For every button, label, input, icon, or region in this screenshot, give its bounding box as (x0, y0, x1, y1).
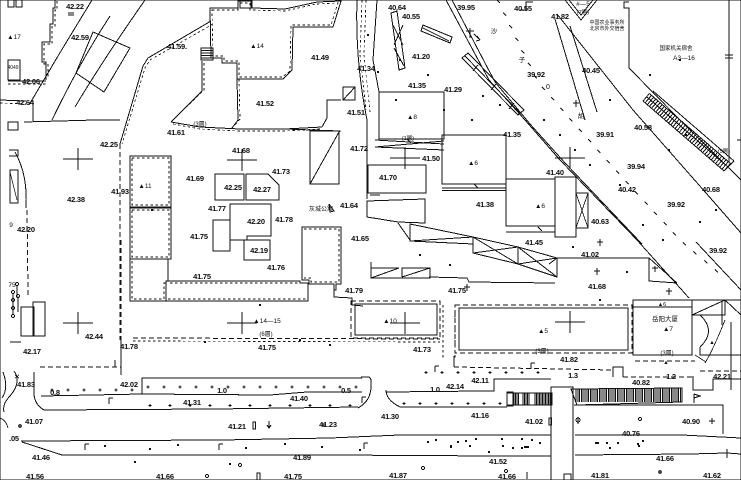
svg-text:41.02: 41.02 (581, 250, 599, 259)
svg-text:41.52: 41.52 (489, 457, 507, 466)
svg-text:9: 9 (9, 222, 13, 229)
svg-text:41.82: 41.82 (560, 355, 578, 364)
svg-text:▲6: ▲6 (535, 203, 545, 210)
svg-text:41.45: 41.45 (525, 238, 543, 247)
svg-text:▲6: ▲6 (468, 160, 478, 167)
svg-text:41.77: 41.77 (208, 204, 226, 213)
svg-text:41.81: 41.81 (591, 471, 609, 480)
svg-text:40.90: 40.90 (682, 417, 700, 426)
svg-text:39.95: 39.95 (457, 3, 475, 12)
svg-text:1.3: 1.3 (568, 371, 578, 380)
svg-text:42.38: 42.38 (67, 195, 85, 204)
svg-text:▲10: ▲10 (383, 318, 397, 325)
svg-text:41.66: 41.66 (498, 472, 516, 480)
svg-text:41.35: 41.35 (503, 130, 521, 139)
svg-text:41.61: 41.61 (167, 128, 185, 137)
svg-text:40.82: 40.82 (632, 378, 650, 387)
svg-text:42.59: 42.59 (71, 33, 89, 42)
svg-text:42.22: 42.22 (66, 2, 84, 11)
svg-text:0.5: 0.5 (341, 386, 351, 395)
svg-text:41.73: 41.73 (272, 167, 290, 176)
svg-text:42.20: 42.20 (247, 217, 265, 226)
svg-text:41.83: 41.83 (17, 380, 35, 389)
svg-text:40.76: 40.76 (622, 429, 640, 438)
svg-text:42.06: 42.06 (22, 77, 40, 86)
svg-text:40.55: 40.55 (514, 4, 532, 13)
svg-text:41.66: 41.66 (656, 454, 674, 463)
svg-text:国家机关宿舍: 国家机关宿舍 (659, 44, 693, 52)
svg-text:(3層): (3層) (660, 350, 673, 357)
svg-text:(3層): (3層) (193, 121, 206, 128)
svg-text:▲17: ▲17 (7, 34, 21, 41)
svg-text:41.72: 41.72 (350, 144, 368, 153)
svg-text:41.68: 41.68 (232, 146, 250, 155)
svg-text:39.94: 39.94 (627, 162, 646, 171)
svg-text:41.89: 41.89 (293, 453, 311, 462)
svg-text:41.87: 41.87 (389, 471, 407, 480)
svg-text:41.76: 41.76 (267, 263, 285, 272)
svg-text:42.44: 42.44 (85, 332, 104, 341)
svg-text:40.63: 40.63 (591, 217, 609, 226)
svg-text:0: 0 (546, 84, 550, 91)
svg-text:42.25: 42.25 (100, 140, 118, 149)
svg-text:(3層): (3層) (535, 348, 548, 355)
svg-text:41.51: 41.51 (347, 108, 365, 117)
svg-text:41.75: 41.75 (258, 343, 276, 352)
svg-text:40.58: 40.58 (634, 123, 652, 132)
svg-text:42.27: 42.27 (253, 185, 271, 194)
svg-text:#—5: #—5 (576, 1, 590, 8)
svg-text:41.68: 41.68 (588, 282, 606, 291)
svg-text:42.14: 42.14 (446, 382, 465, 391)
svg-text:▲: ▲ (663, 360, 668, 366)
svg-text:▲6: ▲6 (658, 302, 667, 308)
svg-text:▲8: ▲8 (407, 114, 417, 121)
svg-text:40.64: 40.64 (388, 3, 407, 12)
svg-text:42.11: 42.11 (471, 376, 488, 385)
svg-text:42.17: 42.17 (23, 347, 41, 356)
svg-text:41.66: 41.66 (156, 472, 174, 480)
svg-text:41.40: 41.40 (546, 168, 564, 177)
svg-text:42.19: 42.19 (250, 246, 268, 255)
svg-text:41.75: 41.75 (190, 232, 208, 241)
svg-text:40.45: 40.45 (582, 66, 600, 75)
svg-text:41.73: 41.73 (413, 345, 431, 354)
svg-text:41.65: 41.65 (351, 234, 369, 243)
svg-text:4049: 4049 (7, 65, 18, 71)
svg-text:41.79: 41.79 (345, 286, 363, 295)
svg-text:42.02: 42.02 (120, 380, 138, 389)
svg-text:41.64: 41.64 (340, 201, 359, 210)
svg-text:40.68: 40.68 (702, 185, 720, 194)
svg-text:(6層): (6層) (259, 331, 272, 338)
svg-text:A3—16: A3—16 (673, 55, 695, 62)
svg-text:▲: ▲ (709, 340, 714, 346)
svg-text:40.55: 40.55 (402, 12, 420, 21)
svg-text:.05: .05 (9, 434, 19, 443)
svg-text:(1層): (1層) (402, 135, 414, 142)
svg-text:41.62: 41.62 (703, 471, 721, 480)
svg-text:41.93: 41.93 (111, 187, 129, 196)
svg-text:39.92: 39.92 (527, 70, 545, 79)
svg-text:41.78: 41.78 (275, 215, 293, 224)
svg-text:41.30: 41.30 (381, 412, 399, 421)
svg-text:41.56: 41.56 (26, 472, 44, 480)
svg-text:41.29: 41.29 (444, 85, 462, 94)
svg-text:41.75: 41.75 (284, 472, 302, 480)
svg-text:▲11: ▲11 (138, 183, 152, 190)
svg-text:41.75: 41.75 (193, 272, 211, 281)
svg-text:41.31: 41.31 (183, 398, 201, 407)
svg-text:41.07: 41.07 (25, 417, 43, 426)
svg-text:41.75: 41.75 (448, 286, 466, 295)
svg-text:41.82: 41.82 (551, 12, 569, 21)
svg-text:▲14: ▲14 (250, 43, 264, 50)
svg-text:41.38: 41.38 (476, 200, 494, 209)
svg-text:41.46: 41.46 (32, 453, 50, 462)
svg-text:1.0: 1.0 (217, 386, 227, 395)
svg-text:42.64: 42.64 (16, 98, 35, 107)
svg-text:39.91: 39.91 (596, 130, 614, 139)
svg-text:中国农业事务所: 中国农业事务所 (589, 19, 624, 26)
svg-text:▲14—15: ▲14—15 (253, 318, 281, 325)
svg-text:41.59.: 41.59. (167, 42, 187, 51)
svg-text:42.25: 42.25 (224, 183, 242, 192)
svg-text:▲5: ▲5 (538, 328, 548, 335)
svg-text:39.92: 39.92 (709, 246, 727, 255)
svg-text:沙: 沙 (491, 28, 498, 35)
svg-text:41.69: 41.69 (186, 174, 204, 183)
svg-text:41.21: 41.21 (228, 422, 246, 431)
svg-text:▲7: ▲7 (663, 326, 673, 333)
svg-text:41.49: 41.49 (311, 53, 329, 62)
svg-text:40.42: 40.42 (618, 185, 636, 194)
svg-text:岳阳大厦: 岳阳大厦 (652, 314, 679, 323)
svg-text:75: 75 (8, 282, 16, 289)
svg-text:子: 子 (519, 56, 526, 64)
svg-text:41.35: 41.35 (408, 81, 426, 90)
svg-text:41.34: 41.34 (357, 64, 376, 73)
svg-text:1.0: 1.0 (430, 385, 440, 394)
svg-text:39.92: 39.92 (667, 200, 685, 209)
svg-text:41.40: 41.40 (290, 394, 308, 403)
svg-text:41.52: 41.52 (256, 99, 274, 108)
svg-text:北京市外交宿舍: 北京市外交宿舍 (589, 25, 624, 32)
svg-text:41.50: 41.50 (422, 154, 440, 163)
svg-text:41.23: 41.23 (319, 420, 337, 429)
svg-text:42.20: 42.20 (17, 225, 35, 234)
svg-text:胡: 胡 (578, 111, 585, 120)
svg-text:(7層): (7層) (577, 9, 589, 16)
svg-text:41.70: 41.70 (379, 173, 397, 182)
svg-text:41.78: 41.78 (120, 342, 138, 351)
svg-text:41.02: 41.02 (525, 417, 543, 426)
svg-text:41.16: 41.16 (471, 411, 489, 420)
svg-text:42.21: 42.21 (713, 372, 731, 381)
svg-text:(5層): (5層) (718, 148, 730, 155)
svg-text:41.20: 41.20 (412, 52, 430, 61)
svg-text:1.2: 1.2 (666, 372, 676, 381)
svg-text:0.8: 0.8 (50, 388, 60, 397)
